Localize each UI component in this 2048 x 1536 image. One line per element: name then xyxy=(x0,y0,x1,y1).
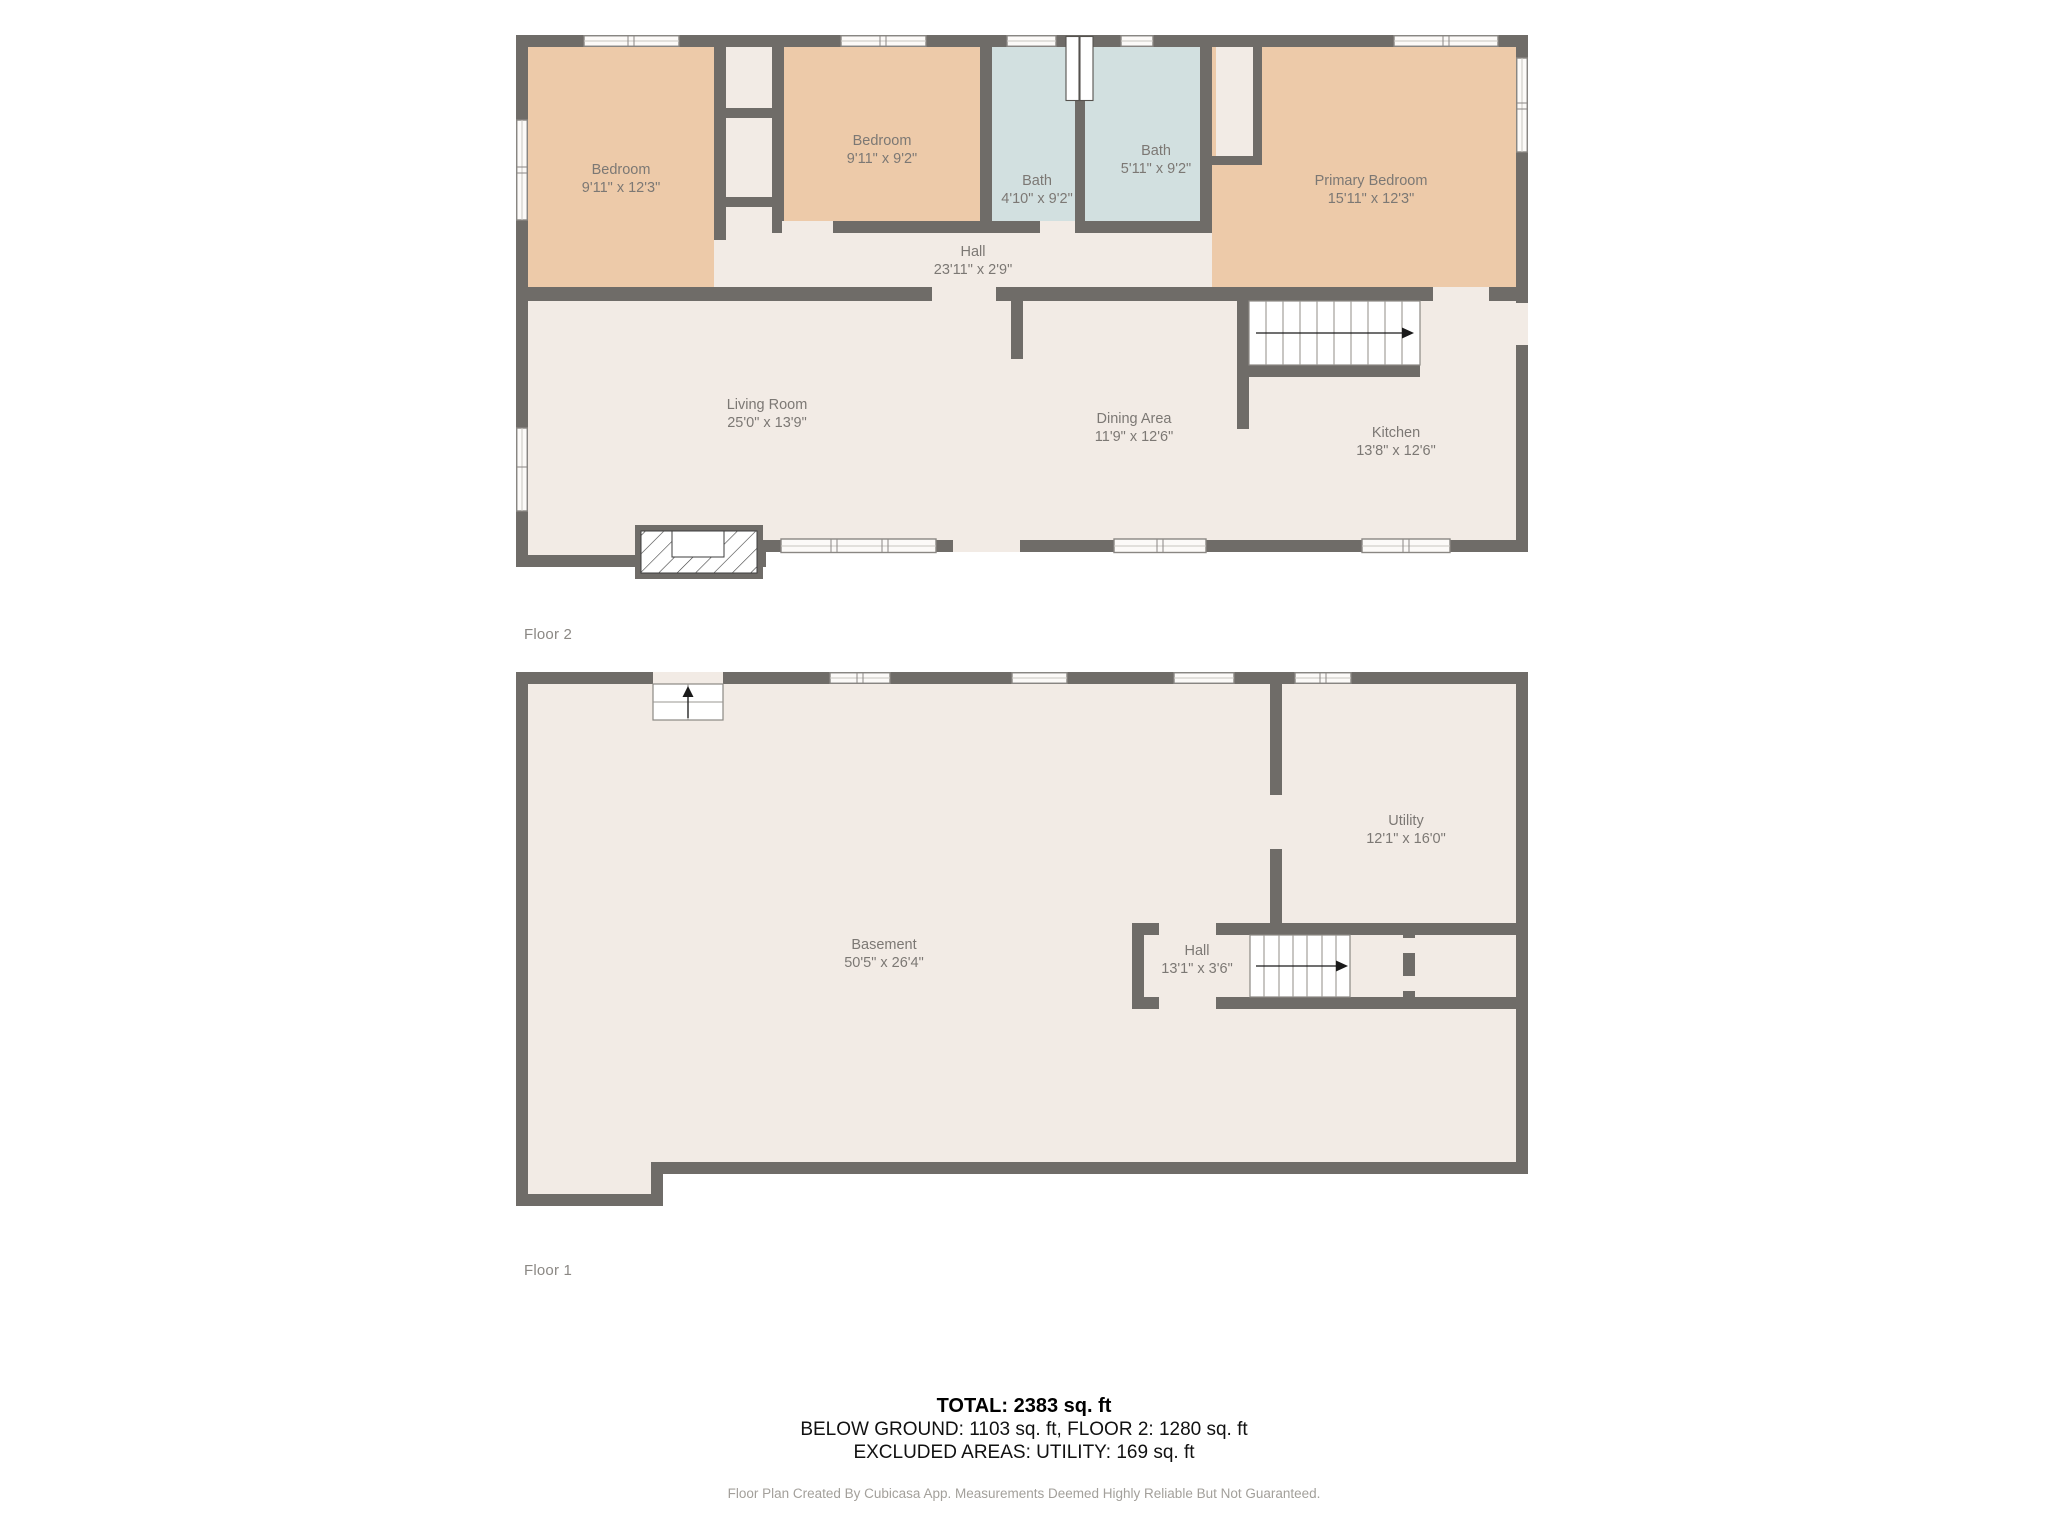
room-dims-hall: 23'11" x 2'9" xyxy=(934,262,1012,278)
excluded-areas-text: EXCLUDED AREAS: UTILITY: 169 sq. ft xyxy=(0,1442,2048,1464)
room-label-kitchen: Kitchen xyxy=(1372,425,1420,441)
floor1-floor-area xyxy=(528,684,1516,1194)
room-dims-utility: 12'1" x 16'0" xyxy=(1366,831,1446,847)
bath-pocket-door xyxy=(1066,37,1093,101)
room-dims-living-room: 25'0" x 13'9" xyxy=(727,415,807,431)
room-dims-bath-1: 4'10" x 9'2" xyxy=(1001,191,1072,207)
room-dims-primary-bedroom: 15'11" x 12'3" xyxy=(1328,191,1415,207)
room-dims-bath-2: 5'11" x 9'2" xyxy=(1121,161,1191,177)
room-label-hall: Hall xyxy=(961,244,986,260)
total-area-text: TOTAL: 2383 sq. ft xyxy=(0,1395,2048,1418)
room-label-bath-2: Bath xyxy=(1141,143,1171,159)
area-breakdown-text: BELOW GROUND: 1103 sq. ft, FLOOR 2: 1280… xyxy=(0,1419,2048,1441)
fireplace xyxy=(635,525,763,579)
floor-1-plan: Basement 50'5" x 26'4" Utility 12'1" x 1… xyxy=(516,672,1528,1207)
room-label-bedroom-1: Bedroom xyxy=(592,162,651,178)
footer-disclaimer: Floor Plan Created By Cubicasa App. Meas… xyxy=(0,1486,2048,1501)
room-label-bedroom-2: Bedroom xyxy=(853,133,912,149)
room-label-dining-area: Dining Area xyxy=(1097,411,1173,427)
entry-staircase xyxy=(653,684,723,720)
floor-2-plan: Bedroom 9'11" x 12'3" Bedroom 9'11" x 9'… xyxy=(516,35,1528,580)
room-label-living-room: Living Room xyxy=(727,397,808,413)
room-dims-dining-area: 11'9" x 12'6" xyxy=(1095,429,1173,445)
floor-1-title: Floor 1 xyxy=(524,1262,572,1279)
room-label-primary-bedroom: Primary Bedroom xyxy=(1315,173,1428,189)
room-dims-bedroom-1: 9'11" x 12'3" xyxy=(582,180,660,196)
room-dims-kitchen: 13'8" x 12'6" xyxy=(1356,443,1436,459)
room-dims-hall-floor1: 13'1" x 3'6" xyxy=(1161,961,1232,977)
room-label-hall-floor1: Hall xyxy=(1185,943,1210,959)
floor-2-title: Floor 2 xyxy=(524,626,572,643)
floor2-staircase xyxy=(1249,301,1420,365)
room-dims-basement: 50'5" x 26'4" xyxy=(844,955,924,971)
primary-closet-niche xyxy=(1216,47,1253,156)
room-label-utility: Utility xyxy=(1388,813,1424,829)
room-label-basement: Basement xyxy=(851,937,916,953)
room-dims-bedroom-2: 9'11" x 9'2" xyxy=(847,151,917,167)
room-label-bath-1: Bath xyxy=(1022,173,1052,189)
room-bath-2 xyxy=(1085,47,1200,221)
floor1-staircase xyxy=(1250,935,1350,997)
